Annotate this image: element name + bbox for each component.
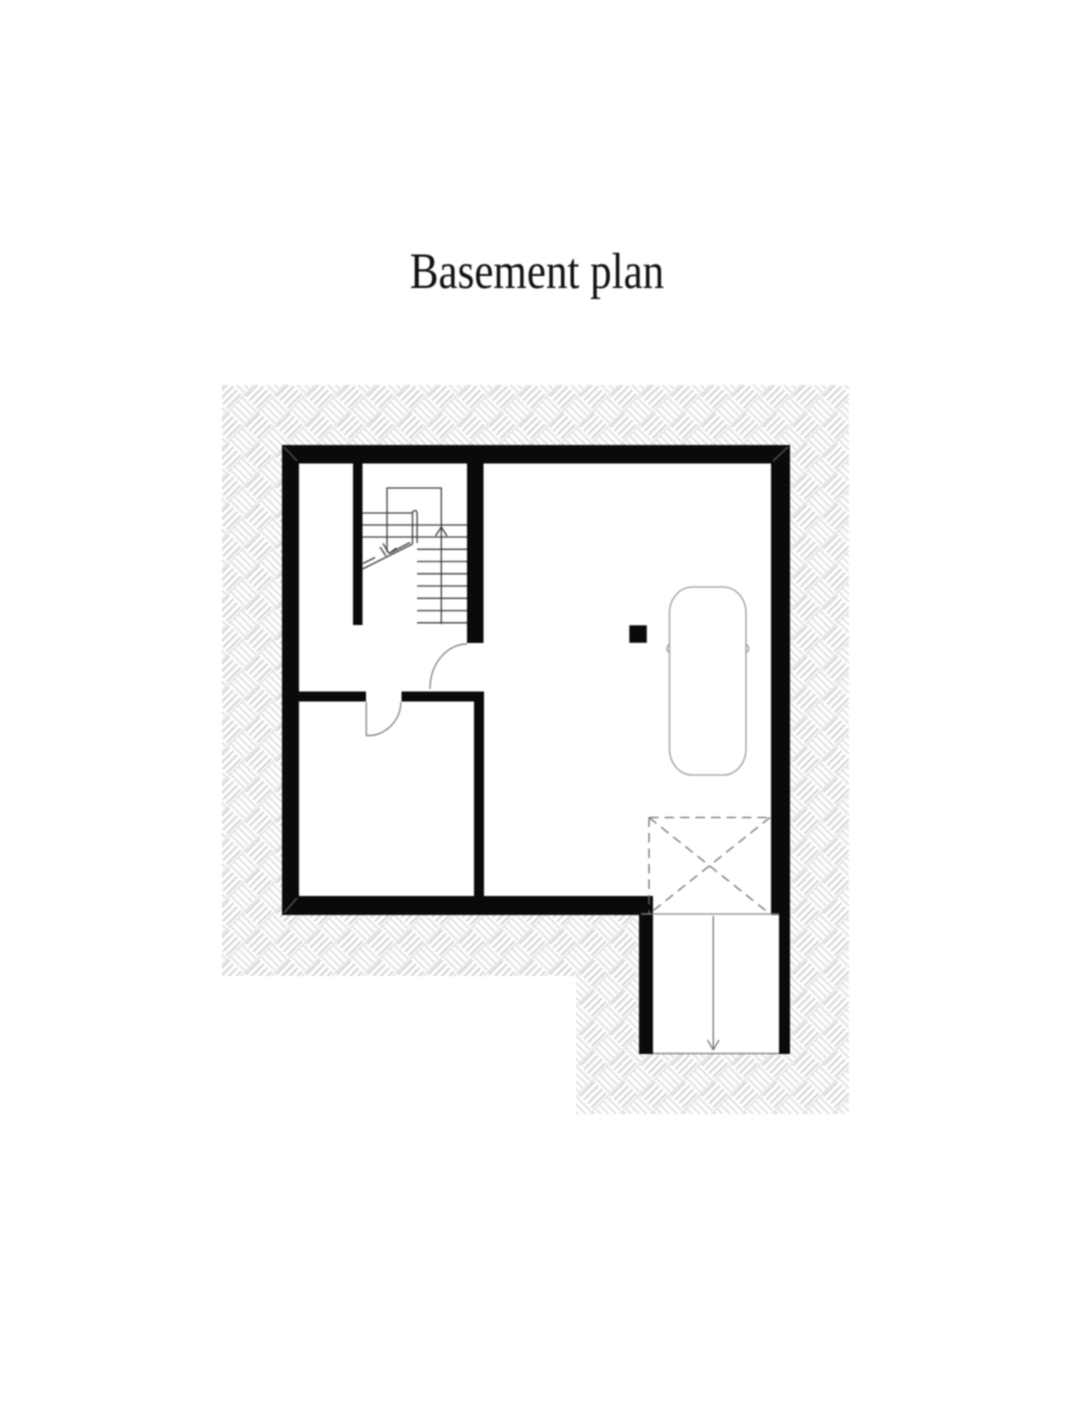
svg-text:Basement plan: Basement plan bbox=[410, 244, 664, 300]
